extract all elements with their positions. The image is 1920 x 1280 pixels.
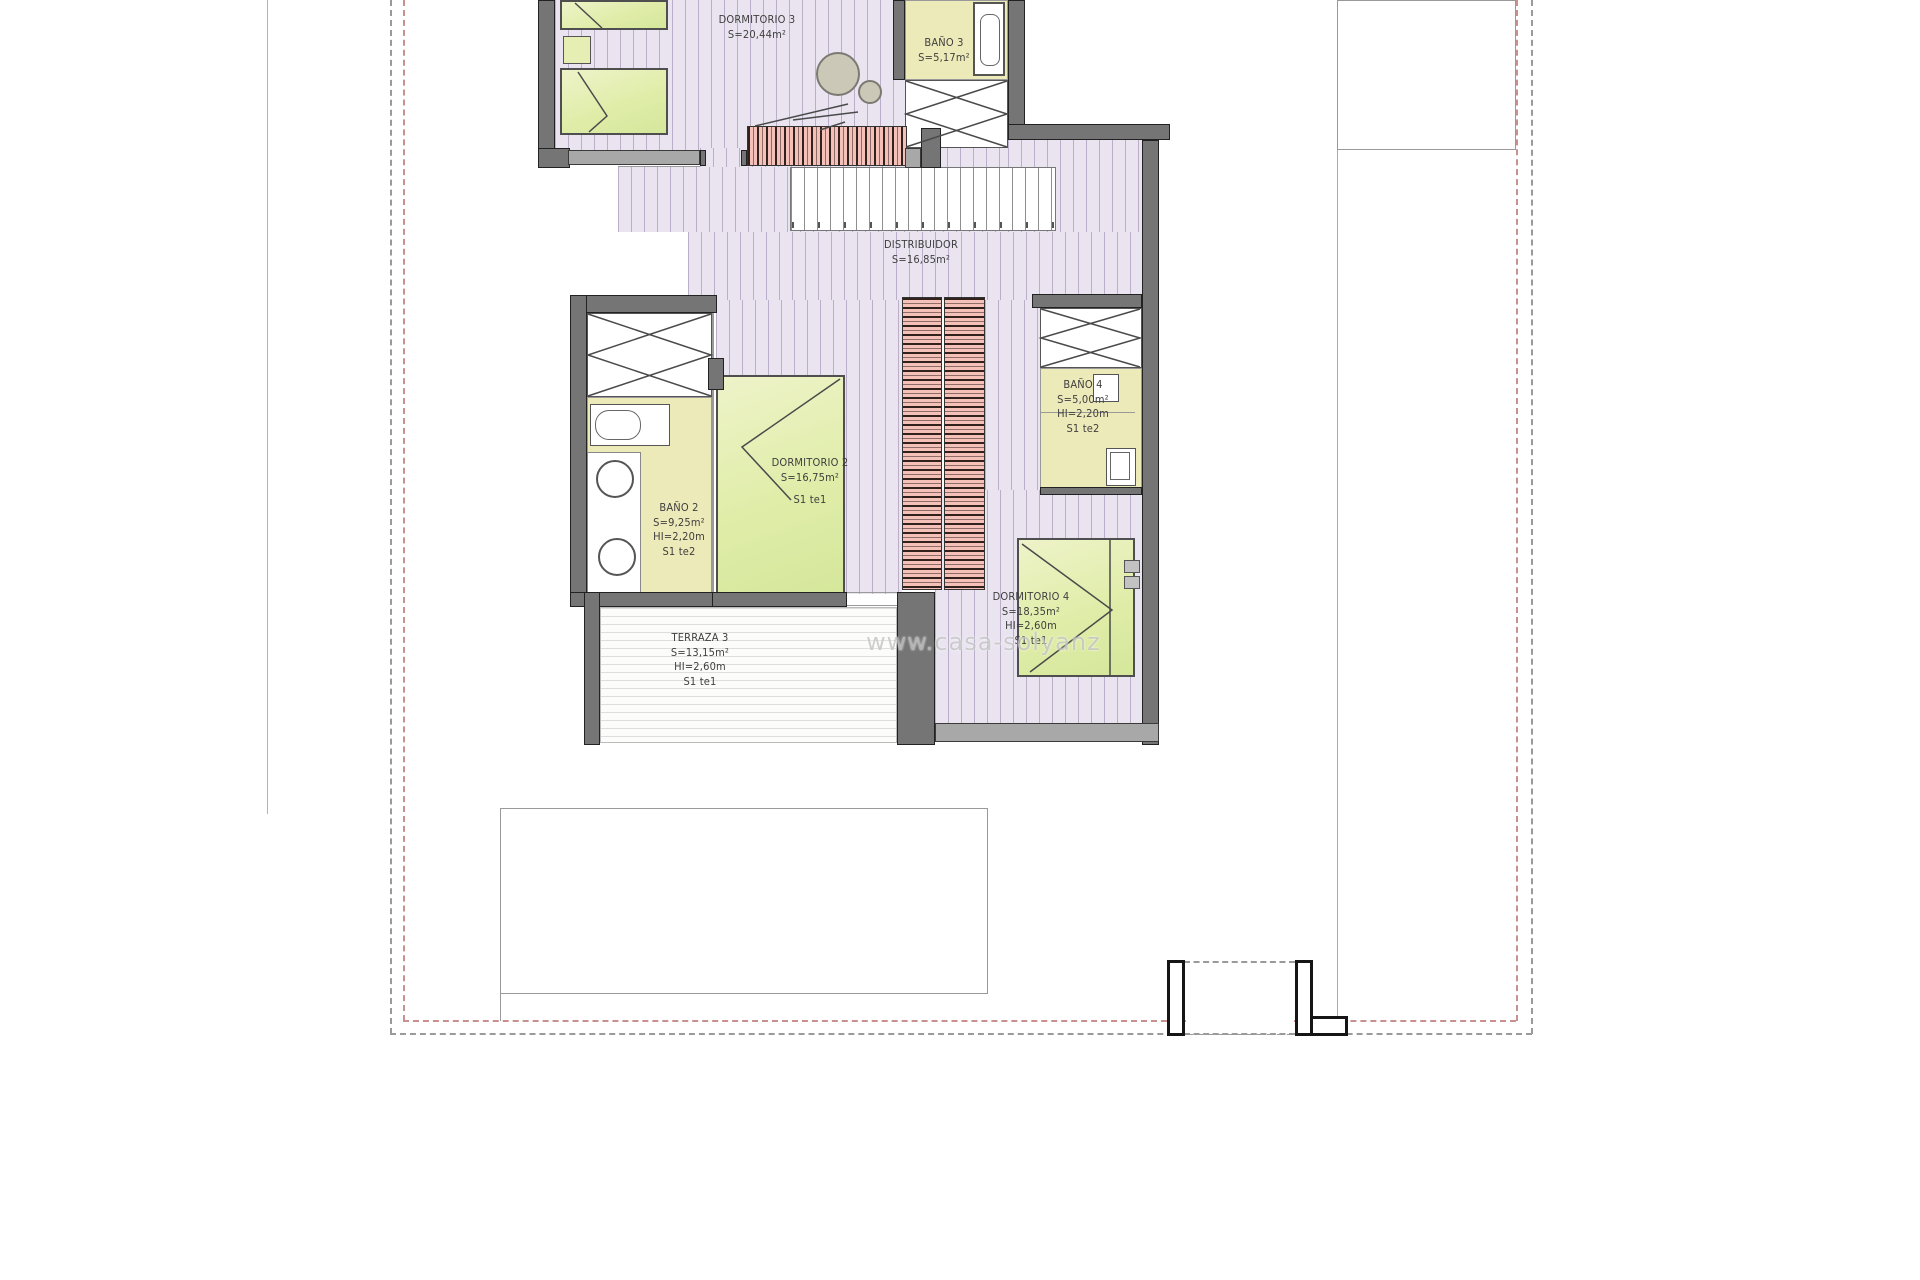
bathtub-icon	[973, 2, 1005, 76]
plant-icon-large	[816, 52, 860, 96]
plot-boundary-left-inner	[403, 0, 405, 1021]
pool-edge-extension-line	[500, 994, 501, 1021]
room-name: DORMITORIO 3	[719, 13, 796, 28]
wall-dorm3-bottom	[568, 150, 700, 165]
room-height: HI=2,20m	[653, 530, 705, 545]
room-area: S=5,17m²	[918, 51, 970, 66]
wall-closet4-top	[1032, 294, 1142, 308]
room-name: BAÑO 3	[918, 36, 970, 51]
floor-corridor-right	[985, 300, 1040, 490]
wall-right-main	[1142, 140, 1159, 745]
gate-dashed-bottom	[1184, 1033, 1295, 1035]
sink-icon-bano2	[595, 410, 641, 440]
nightstand-icon-dorm3	[563, 36, 591, 64]
neighbour-plot-side-line	[1337, 150, 1338, 1036]
wall-dorm4-bottom	[935, 723, 1159, 742]
plot-boundary-bottom-inner	[403, 1020, 1516, 1022]
wall-right-top	[1008, 0, 1025, 140]
terraza-deck	[600, 607, 897, 743]
room-area: S=13,15m²	[671, 646, 729, 661]
gate-opening-mask	[1186, 1012, 1294, 1034]
watermark-text: www.casa-solyanz	[866, 628, 1101, 656]
closet-bano-4	[1040, 308, 1142, 368]
wall-dorm2-pillar	[708, 358, 724, 390]
floor-distribuidor-ne	[1008, 140, 1142, 168]
plant-icon-small	[858, 80, 882, 104]
room-label-dormitorio-2: DORMITORIO 2 S=16,75m² S1 te1	[772, 456, 849, 508]
wall-terraza-left	[584, 592, 600, 745]
bidet-icon-bano2	[598, 538, 636, 576]
wardrobe-icon-central-right	[944, 297, 985, 590]
room-label-dormitorio-3: DORMITORIO 3 S=20,44m²	[719, 13, 796, 42]
wardrobe-icon-central-left	[902, 297, 942, 590]
pool-outline	[500, 808, 988, 994]
room-height: HI=2,20m	[1057, 407, 1109, 422]
room-area: S=18,35m²	[993, 605, 1070, 620]
room-area: S=20,44m²	[719, 28, 796, 43]
wall-bano4-bottom	[1040, 487, 1142, 495]
terraza-door-line-bottom	[847, 605, 897, 606]
room-note: S1 te2	[1057, 422, 1109, 437]
room-name: DORMITORIO 2	[772, 456, 849, 471]
wall-middle-left	[570, 295, 587, 605]
stairs-step-ticks	[792, 222, 1054, 228]
room-label-bano-3: BAÑO 3 S=5,17m²	[918, 36, 970, 65]
wall-dorm3-corner	[538, 148, 570, 168]
shower-tray	[1110, 452, 1130, 480]
room-name: TERRAZA 3	[671, 631, 729, 646]
toilet-icon-bano2	[596, 460, 634, 498]
bathtub-basin	[980, 14, 1000, 66]
site-left-boundary-line	[267, 0, 268, 814]
plot-boundary-right-outer	[1531, 0, 1533, 1034]
door-jamb-a	[700, 150, 706, 166]
wall-dorm2-bottom	[712, 592, 847, 607]
room-name: BAÑO 4	[1057, 378, 1109, 393]
room-note: S1 te1	[772, 493, 849, 508]
wall-middle-top	[570, 295, 717, 313]
room-label-bano-2: BAÑO 2 S=9,25m² HI=2,20m S1 te2	[653, 501, 705, 559]
wall-top-jog	[1008, 124, 1170, 140]
dorm2-left-thin-wall	[712, 300, 714, 592]
bed-icon-dorm3-a	[560, 0, 668, 30]
room-height: HI=2,60m	[671, 660, 729, 675]
plot-boundary-left-outer	[390, 0, 392, 1034]
shower-icon-bano4	[1106, 448, 1136, 486]
plot-boundary-bottom-outer	[390, 1033, 1532, 1035]
room-area: S=9,25m²	[653, 516, 705, 531]
room-name: DORMITORIO 4	[993, 590, 1070, 605]
wall-stair-cap-light	[905, 148, 921, 168]
gate-pillar-left	[1167, 960, 1185, 1036]
room-name: DISTRIBUIDOR	[884, 238, 958, 253]
floor-plan-canvas: DORMITORIO 3 S=20,44m² BAÑO 3 S=5,17m² D…	[0, 0, 1920, 1280]
wall-terraza-dorm4-divider	[897, 592, 935, 745]
neighbour-plot-outline	[1337, 0, 1516, 150]
wall-bano3-divider	[893, 0, 905, 80]
door-jamb-b	[741, 150, 747, 166]
room-area: S=5,00m²	[1057, 393, 1109, 408]
gate-dashed-top	[1184, 961, 1295, 963]
room-label-bano-4: BAÑO 4 S=5,00m² HI=2,20m S1 te2	[1057, 378, 1109, 436]
nightstand-icon-dorm4-a	[1124, 560, 1140, 573]
room-area: S=16,85m²	[884, 253, 958, 268]
terraza-door-line-top	[847, 592, 897, 593]
plot-boundary-right-inner	[1516, 0, 1518, 1021]
vanity-counter-icon	[590, 404, 670, 446]
wall-left-top	[538, 0, 555, 152]
gate-pillar-right-foot	[1310, 1016, 1348, 1036]
room-label-distribuidor: DISTRIBUIDOR S=16,85m²	[884, 238, 958, 267]
nightstand-icon-dorm4-b	[1124, 576, 1140, 589]
room-note: S1 te1	[671, 675, 729, 690]
room-area: S=16,75m²	[772, 471, 849, 486]
room-label-terraza-3: TERRAZA 3 S=13,15m² HI=2,60m S1 te1	[671, 631, 729, 689]
wardrobe-icon-dorm3	[747, 126, 907, 166]
closet-bano-2	[587, 313, 712, 397]
room-name: BAÑO 2	[653, 501, 705, 516]
room-note: S1 te2	[653, 545, 705, 560]
wall-stair-cap-dark	[921, 128, 941, 168]
bed-icon-dorm3-b	[560, 68, 668, 135]
